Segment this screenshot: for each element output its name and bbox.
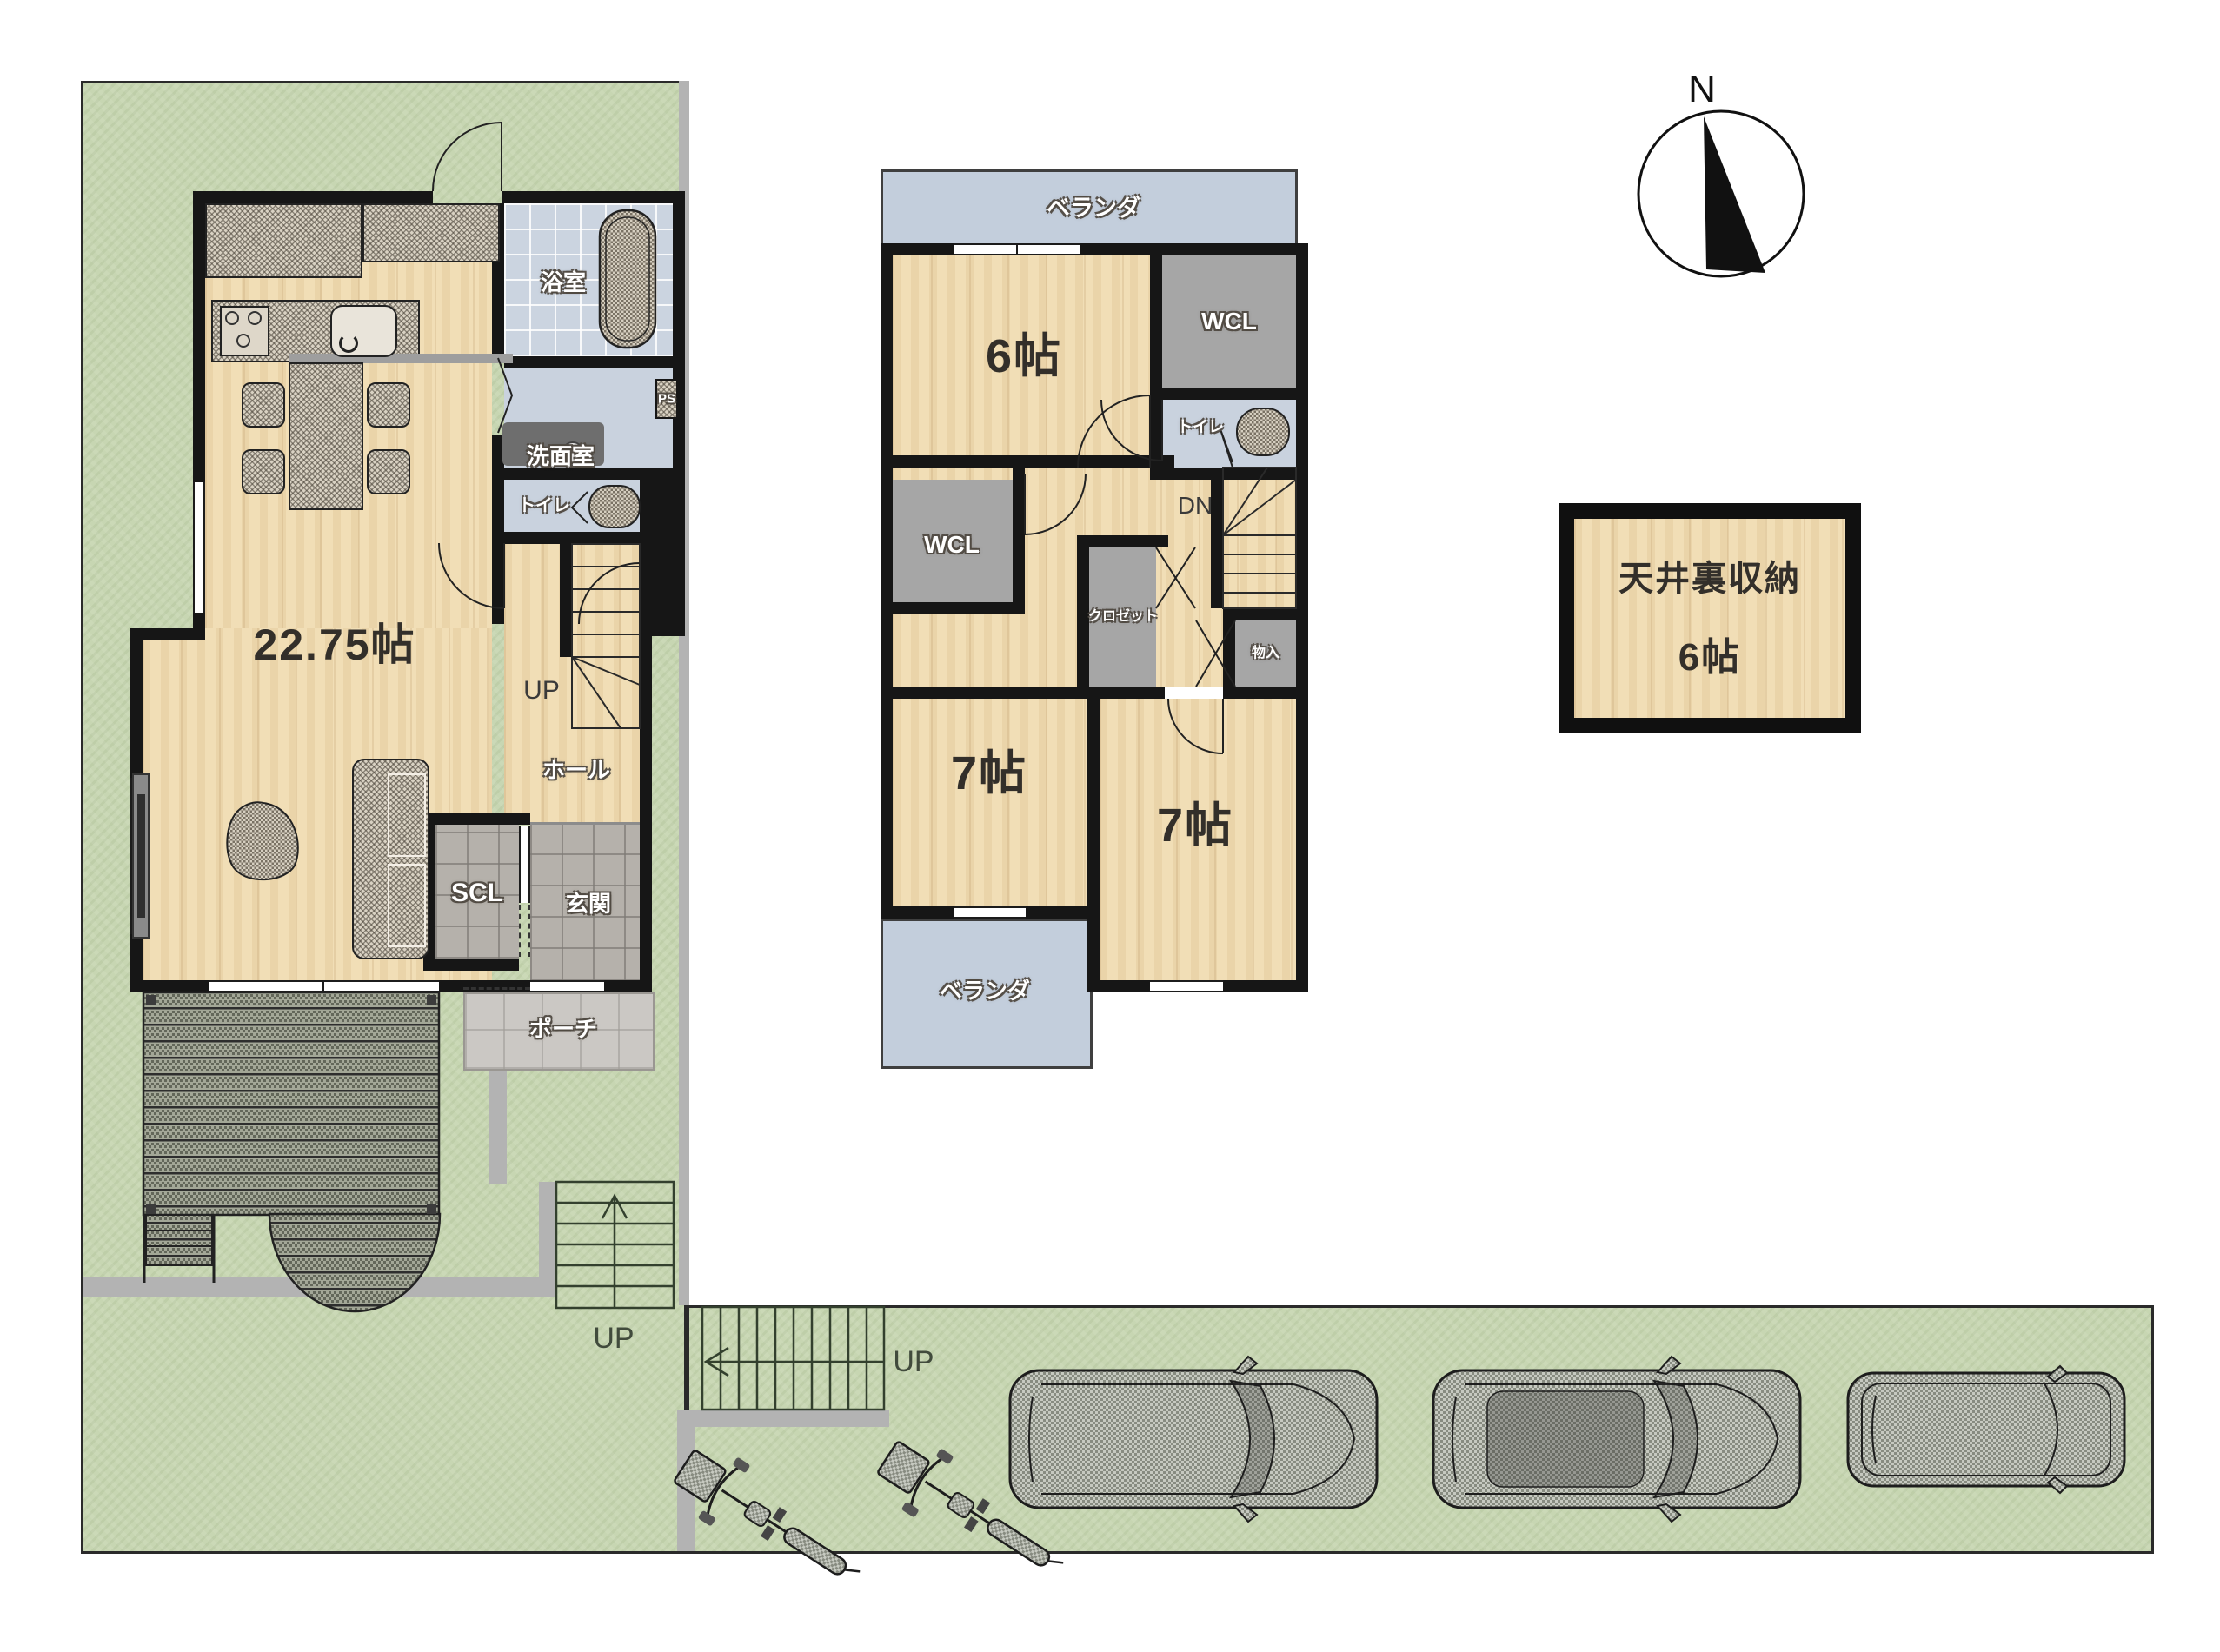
ldk-hall-door-arc xyxy=(439,543,504,608)
label-wcl-upper: WCL xyxy=(1201,309,1257,334)
label-toilet-2f: トイレ xyxy=(1177,419,1224,435)
label-bedroom-7-right: 7帖 xyxy=(1157,802,1233,849)
label-attic-size: 6帖 xyxy=(1678,639,1741,677)
toilet2f-door-arc xyxy=(1101,400,1162,461)
closet-double-doors xyxy=(1156,547,1195,608)
label-closet: クロゼット xyxy=(1088,610,1158,624)
stairs-1f xyxy=(572,544,640,728)
label-attic-name: 天井裏収納 xyxy=(1618,561,1801,596)
label-street-stairs-up: UP xyxy=(893,1347,934,1377)
bicycle-icon-1 xyxy=(664,1435,876,1608)
car-icon-3 xyxy=(1848,1366,2124,1493)
label-ldk-size: 22.75帖 xyxy=(253,623,415,667)
storage-double-doors xyxy=(1196,620,1235,687)
label-veranda-top: ベランダ xyxy=(1047,197,1140,221)
toilet1f-door-fold xyxy=(572,492,588,523)
bed7r-door-arc xyxy=(1168,699,1223,753)
plan-linework-overlay xyxy=(0,0,2220,1652)
hall-stair-door-arc xyxy=(579,563,640,624)
label-toilet-1f: トイレ xyxy=(518,497,570,514)
wcl-lower-door-arc xyxy=(1025,474,1086,534)
label-bath: 浴室 xyxy=(541,271,586,294)
label-stairs-down-2f: DN xyxy=(1178,494,1213,518)
label-hall: ホール xyxy=(542,759,610,781)
label-veranda-bottom: ベランダ xyxy=(940,979,1030,1002)
label-pipe-space: PS xyxy=(658,393,675,406)
compass xyxy=(1638,111,1804,276)
washroom-fold-door xyxy=(498,358,512,433)
front-door-arc xyxy=(433,123,502,191)
floor-plan-page: 22.75帖 浴室 洗面室 PS トイレ UP ホール SCL 玄関 ポーチ ベ… xyxy=(0,0,2220,1652)
label-scl: SCL xyxy=(451,880,503,906)
label-compass-north: N xyxy=(1688,70,1716,109)
toilet1f-fixture xyxy=(589,486,640,527)
garden-stairs xyxy=(556,1182,674,1308)
bathtub xyxy=(600,210,655,348)
label-bedroom-6: 6帖 xyxy=(986,333,1062,380)
label-stairs-up-1f: UP xyxy=(523,678,560,704)
car-icon-1 xyxy=(1010,1357,1377,1522)
wood-deck xyxy=(143,992,440,1311)
car-icon-2 xyxy=(1433,1357,1800,1522)
label-entrance: 玄関 xyxy=(566,892,611,915)
living-rug xyxy=(227,802,297,879)
stairs-2f xyxy=(1223,468,1296,608)
label-porch: ポーチ xyxy=(529,1018,597,1040)
label-bedroom-7-left: 7帖 xyxy=(951,750,1027,797)
label-wcl-lower: WCL xyxy=(924,533,980,557)
label-washroom: 洗面室 xyxy=(527,445,595,468)
label-storage: 物入 xyxy=(1252,647,1279,660)
toilet2f-fixture xyxy=(1237,408,1289,455)
label-garden-stairs-up: UP xyxy=(593,1324,634,1353)
street-stairs xyxy=(702,1307,884,1410)
